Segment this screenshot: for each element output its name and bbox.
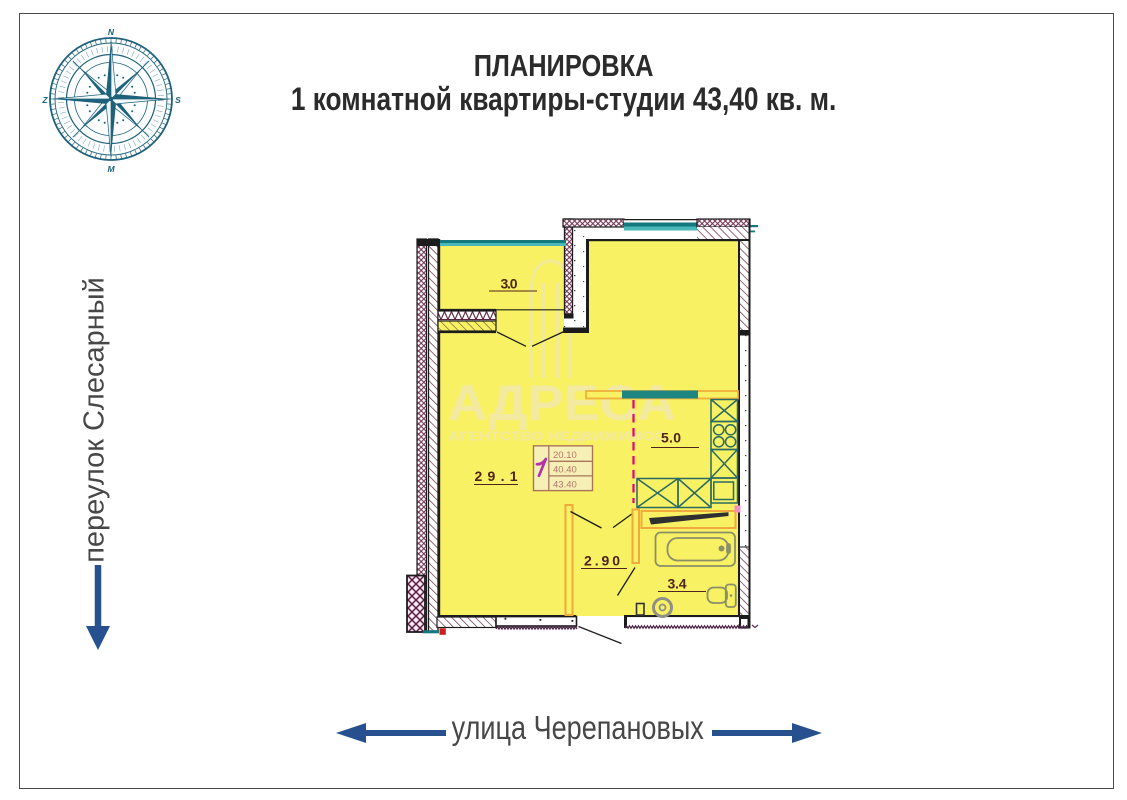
svg-text:2.90: 2.90 <box>584 553 620 569</box>
svg-text:АДРЕСА: АДРЕСА <box>448 375 676 431</box>
svg-text:43.40: 43.40 <box>553 480 577 491</box>
svg-text:40.40: 40.40 <box>553 465 577 476</box>
svg-text:M: M <box>107 164 115 174</box>
svg-text:5.0: 5.0 <box>661 430 681 446</box>
svg-text:3.4: 3.4 <box>668 576 687 592</box>
svg-text:20.10: 20.10 <box>553 450 577 461</box>
svg-text:N: N <box>108 27 115 37</box>
svg-text:3.0: 3.0 <box>501 276 518 292</box>
